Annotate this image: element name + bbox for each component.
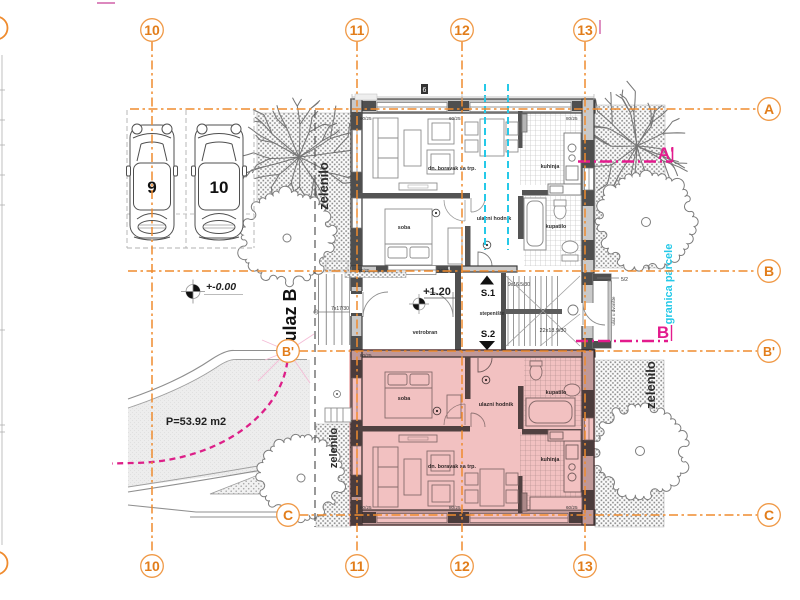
svg-text:dn. boravak sa trp.: dn. boravak sa trp. <box>428 166 476 172</box>
svg-text:granica parcele: granica parcele <box>663 244 675 325</box>
svg-text:B: B <box>657 323 669 342</box>
svg-text:5/2: 5/2 <box>621 277 628 283</box>
svg-text:10: 10 <box>210 178 229 197</box>
svg-text:stepenište: stepenište <box>480 311 505 317</box>
svg-text:ulaz u dvorište: ulaz u dvorište <box>611 296 616 326</box>
svg-text:80/25: 80/25 <box>449 505 461 510</box>
svg-text:vetrobran: vetrobran <box>413 330 438 336</box>
svg-text:12: 12 <box>454 22 470 38</box>
svg-text:kuhinja: kuhinja <box>541 164 561 170</box>
svg-text:60/25: 60/25 <box>360 116 372 121</box>
svg-text:11: 11 <box>350 22 365 38</box>
svg-text:80/25: 80/25 <box>566 116 578 121</box>
svg-text:C: C <box>764 507 774 523</box>
svg-text:+-0.00: +-0.00 <box>206 281 236 293</box>
svg-text:+1.20: +1.20 <box>423 286 451 298</box>
svg-text:60/25: 60/25 <box>566 505 578 510</box>
svg-text:7x17/30: 7x17/30 <box>331 306 349 312</box>
svg-text:ulazni hodnik: ulazni hodnik <box>477 216 511 222</box>
svg-text:10: 10 <box>144 22 160 38</box>
svg-text:C: C <box>283 507 293 523</box>
svg-text:6: 6 <box>423 87 427 94</box>
svg-text:60/25: 60/25 <box>449 116 461 121</box>
svg-text:13: 13 <box>577 22 593 38</box>
svg-text:S.1: S.1 <box>481 288 496 299</box>
svg-text:A': A' <box>658 144 674 163</box>
svg-text:22x18.9/30: 22x18.9/30 <box>540 328 567 334</box>
svg-text:ulaz B: ulaz B <box>280 288 300 341</box>
svg-text:60/25: 60/25 <box>360 505 372 510</box>
svg-text:S.2: S.2 <box>481 329 495 340</box>
svg-text:B': B' <box>763 345 775 359</box>
svg-text:B: B <box>764 263 774 279</box>
svg-text:11: 11 <box>350 558 365 574</box>
svg-text:12: 12 <box>454 558 470 574</box>
svg-text:zelenilo: zelenilo <box>316 162 331 210</box>
svg-text:soba: soba <box>398 225 412 231</box>
svg-text:80/25: 80/25 <box>360 353 372 358</box>
svg-text:zelenilo: zelenilo <box>643 361 658 409</box>
svg-text:A: A <box>764 101 774 117</box>
svg-text:13: 13 <box>577 558 593 574</box>
svg-text:P=53.92 m2: P=53.92 m2 <box>166 416 226 428</box>
svg-text:10: 10 <box>144 558 160 574</box>
svg-text:kupatilo: kupatilo <box>546 224 567 230</box>
svg-text:zelenilo: zelenilo <box>328 428 340 469</box>
svg-text:B': B' <box>282 345 294 359</box>
